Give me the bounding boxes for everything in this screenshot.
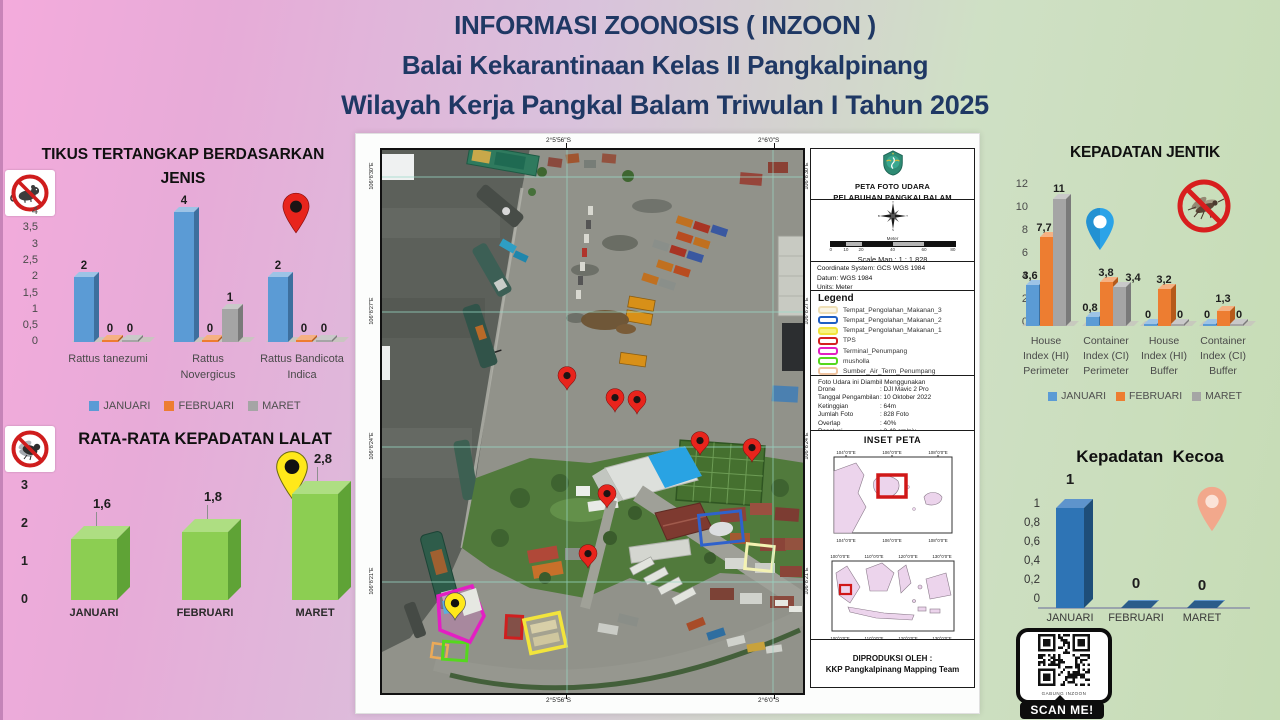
legend-swatch-tps <box>818 337 838 345</box>
legend-swatch-makanan1 <box>818 327 838 335</box>
svg-text:106°0'0"E: 106°0'0"E <box>882 450 901 455</box>
svg-text:108°0'0"E: 108°0'0"E <box>928 450 947 455</box>
tikus-legend: JANUARI FEBRUARI MARET <box>45 400 345 412</box>
bar-jentik-jan-1 <box>1026 285 1039 326</box>
legend-januari-swatch <box>89 401 99 411</box>
lalat-chart-title: RATA-RATA KEPADATAN LALAT <box>55 430 355 449</box>
svg-text:S: S <box>891 228 893 231</box>
bar-tikus-jan-3 <box>268 277 288 342</box>
tikus-chart-title: TIKUS TERTANGKAP BERDASARKAN JENIS <box>18 143 348 191</box>
no-mosquito-icon <box>1175 177 1233 240</box>
bar-kecoa-januari <box>1056 508 1084 608</box>
jentik-legend-januari-swatch <box>1048 392 1057 401</box>
title-line-3: Wilayah Kerja Pangkal Balam Triwulan I T… <box>70 90 1260 121</box>
title-line-2: Balai Kekarantinaan Kelas II Pangkalpina… <box>70 50 1260 81</box>
bar-tikus-mar-3 <box>316 340 332 342</box>
map-coord-top-2: 2°6'0"S <box>758 137 779 144</box>
map-info-column: PETA FOTO UDARA PELABUHAN PANGKALBALAM U… <box>810 148 975 695</box>
bar-tikus-feb-1 <box>102 340 118 342</box>
page-edge-strip <box>0 0 3 720</box>
lalat-cat-januari: JANUARI <box>49 607 139 619</box>
svg-text:130°0'0"E: 130°0'0"E <box>932 554 951 559</box>
svg-text:B: B <box>877 214 879 218</box>
inset-map-bangka: 104°0'0"E 106°0'0"E 108°0'0"E 104°0'0"E … <box>824 447 962 545</box>
bar-tikus-jan-1 <box>74 277 94 342</box>
svg-text:104°0'0"E: 104°0'0"E <box>836 450 855 455</box>
kkp-logo <box>880 150 906 176</box>
kecoa-cat-januari: JANUARI <box>1035 612 1105 624</box>
bar-jentik-jan-2 <box>1086 317 1099 326</box>
jentik-cat-2: ContainerIndex (CI)Perimeter <box>1075 334 1137 380</box>
page-title: INFORMASI ZOONOSIS ( INZOON ) Balai Keka… <box>70 10 1260 121</box>
jentik-legend-maret-swatch <box>1192 392 1201 401</box>
map-legend-box: Legend Tempat_Pengolahan_Makanan_3 Tempa… <box>810 290 975 376</box>
lalat-plot: 1,6 1,8 2,8 <box>30 455 360 600</box>
bar-tikus-mar-1 <box>122 340 138 342</box>
svg-text:110°0'0"E: 110°0'0"E <box>864 554 883 559</box>
scanme-label: SCAN ME! <box>1020 702 1104 719</box>
infographic-page: INFORMASI ZOONOSIS ( INZOON ) Balai Keka… <box>0 0 1280 720</box>
bar-kecoa-maret <box>1187 600 1225 608</box>
qr-code[interactable]: GABUNG INZOON <box>1016 628 1112 704</box>
map-credits-box: DIPRODUKSI OLEH : KKP Pangkalpinang Mapp… <box>810 639 975 688</box>
jentik-cat-4: ContainerIndex (CI)Buffer <box>1192 334 1254 380</box>
kecoa-chart-title: Kepadatan Kecoa <box>1040 447 1260 467</box>
bar-kecoa-februari <box>1121 600 1159 608</box>
kecoa-pin-icon <box>1193 483 1231 540</box>
kecoa-cat-maret: MARET <box>1167 612 1237 624</box>
svg-text:104°0'0"E: 104°0'0"E <box>836 538 855 543</box>
bar-jentik-mar-2 <box>1113 287 1126 326</box>
svg-text:120°0'0"E: 120°0'0"E <box>898 554 917 559</box>
bar-jentik-mar-4 <box>1230 324 1243 326</box>
map-coord-bottom-2: 2°6'0"S <box>758 697 779 704</box>
bar-lalat-januari <box>71 539 117 600</box>
lalat-cat-februari: FEBRUARI <box>160 607 250 619</box>
map-coord-bottom-1: 2°5'56"S <box>546 697 571 704</box>
bar-tikus-jan-2 <box>174 212 194 342</box>
svg-text:108°0'0"E: 108°0'0"E <box>928 538 947 543</box>
svg-text:100°0'0"E: 100°0'0"E <box>830 554 849 559</box>
compass-rose-icon: U T S B <box>877 201 909 231</box>
map-scale-box: U T S B Meter 0 10 20 40 60 80 <box>810 199 975 263</box>
jentik-chart-title: KEPADATAN JENTIK <box>1025 144 1265 162</box>
jentik-cat-1: HouseIndex (HI)Perimeter <box>1015 334 1077 380</box>
inset-map-indonesia: 100°0'0"E 110°0'0"E 120°0'0"E 130°0'0"E … <box>824 551 962 641</box>
jentik-cat-3: HouseIndex (HI)Buffer <box>1133 334 1195 380</box>
legend-maret-swatch <box>248 401 258 411</box>
map-inset-box: INSET PETA 104°0'0"E 106°0'0"E 108°0'0"E… <box>810 430 975 641</box>
lalat-cat-maret: MARET <box>270 607 360 619</box>
aerial-photo-map <box>380 148 805 695</box>
bar-tikus-mar-2 <box>222 309 238 342</box>
legend-swatch-musholla <box>818 357 838 365</box>
kecoa-cat-februari: FEBRUARI <box>1101 612 1171 624</box>
map-photo-info-box: Foto Udara ini Diambil Menggunakan Drone… <box>810 375 975 431</box>
legend-swatch-makanan2 <box>818 316 838 324</box>
title-line-1: INFORMASI ZOONOSIS ( INZOON ) <box>70 10 1260 41</box>
bar-lalat-maret <box>292 494 338 600</box>
map-coordinate-box: Coordinate System: GCS WGS 1984 Datum: W… <box>810 261 975 291</box>
svg-text:106°0'0"E: 106°0'0"E <box>882 538 901 543</box>
svg-text:T: T <box>906 214 908 218</box>
bar-tikus-feb-3 <box>296 340 312 342</box>
legend-februari-swatch <box>164 401 174 411</box>
jentik-pin-icon <box>1082 203 1118 260</box>
svg-text:U: U <box>891 201 893 204</box>
map-coord-top-1: 2°5'56"S <box>546 137 571 144</box>
bar-jentik-jan-4 <box>1203 324 1216 326</box>
bar-jentik-mar-3 <box>1171 324 1184 326</box>
bar-lalat-februari <box>182 532 228 600</box>
map-title-box: PETA FOTO UDARA PELABUHAN PANGKALBALAM <box>810 148 975 200</box>
tikus-plot: 2 0 0 4 0 1 2 0 0 <box>40 200 352 342</box>
jentik-legend-februari-swatch <box>1116 392 1125 401</box>
scale-bar: Meter 0 10 20 40 60 80 <box>830 236 956 254</box>
bar-jentik-jan-3 <box>1144 324 1157 326</box>
tikus-cat-3: Rattus BandicotaIndica <box>242 352 362 384</box>
bar-tikus-feb-2 <box>202 340 218 342</box>
bar-jentik-mar-1 <box>1053 199 1066 326</box>
legend-swatch-terminal <box>818 347 838 355</box>
jentik-legend: JANUARI FEBRUARI MARET <box>1030 390 1260 402</box>
legend-swatch-makanan3 <box>818 306 838 314</box>
